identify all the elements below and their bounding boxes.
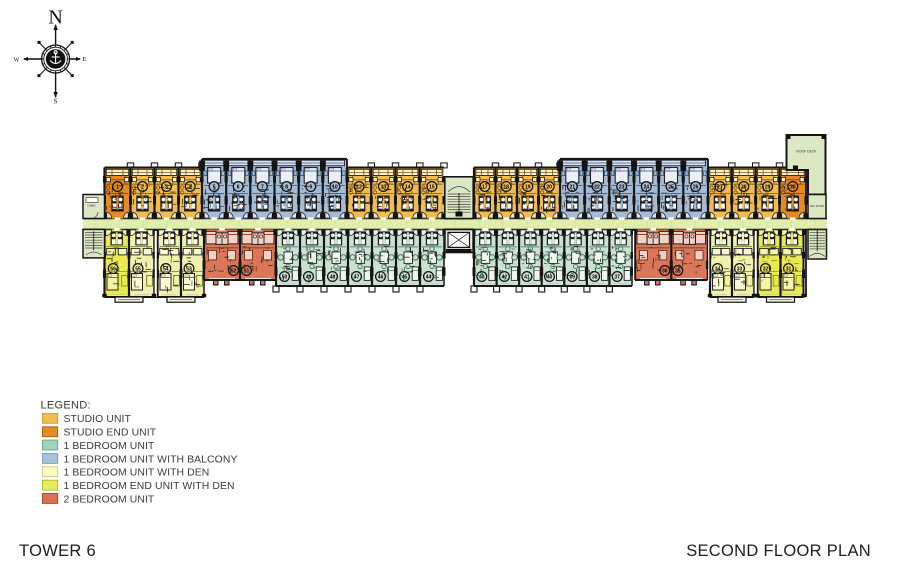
svg-text:2 BEDROOM UNIT: 2 BEDROOM UNIT <box>64 494 155 505</box>
svg-text:10: 10 <box>332 184 338 190</box>
svg-text:S: S <box>54 98 58 106</box>
svg-text:N: N <box>48 6 62 28</box>
svg-text:1 BEDROOM UNIT WITH BALCONY: 1 BEDROOM UNIT WITH BALCONY <box>64 454 238 465</box>
svg-text:35: 35 <box>675 268 681 274</box>
svg-text:50: 50 <box>282 274 288 280</box>
svg-text:41: 41 <box>524 274 530 280</box>
svg-text:E: E <box>83 56 87 63</box>
svg-text:19: 19 <box>525 184 531 190</box>
svg-text:LOBBY: LOBBY <box>87 204 96 208</box>
svg-text:37: 37 <box>614 274 620 280</box>
svg-text:STUDIO UNIT: STUDIO UNIT <box>64 414 132 425</box>
svg-text:6: 6 <box>237 184 240 190</box>
svg-text:40: 40 <box>547 274 553 280</box>
svg-text:43: 43 <box>479 274 485 280</box>
svg-text:SECOND FLOOR PLAN: SECOND FLOOR PLAN <box>686 542 871 560</box>
svg-text:38: 38 <box>592 274 598 280</box>
svg-text:1 BEDROOM END UNIT WITH DEN: 1 BEDROOM END UNIT WITH DEN <box>64 481 235 492</box>
svg-text:45: 45 <box>402 274 408 280</box>
svg-text:1 BEDROOM UNIT: 1 BEDROOM UNIT <box>64 441 155 452</box>
svg-text:TOWER 6: TOWER 6 <box>19 542 96 560</box>
svg-text:20: 20 <box>546 184 552 190</box>
svg-text:52: 52 <box>231 268 237 274</box>
svg-text:W: W <box>14 58 20 64</box>
svg-text:ROOF DECK: ROOF DECK <box>796 150 817 154</box>
svg-text:17: 17 <box>482 184 488 190</box>
svg-text:44: 44 <box>426 274 432 280</box>
svg-text:15: 15 <box>429 184 435 190</box>
svg-text:46: 46 <box>378 274 384 280</box>
svg-text:1: 1 <box>116 184 119 190</box>
svg-text:18: 18 <box>503 184 509 190</box>
svg-text:36: 36 <box>662 268 668 274</box>
svg-text:9: 9 <box>309 184 312 190</box>
svg-text:STUDIO END UNIT: STUDIO END UNIT <box>64 428 157 439</box>
svg-text:LEGEND:: LEGEND: <box>41 400 91 412</box>
svg-text:48: 48 <box>330 274 336 280</box>
svg-text:BAL ROOM: BAL ROOM <box>810 204 824 208</box>
svg-text:47: 47 <box>354 274 360 280</box>
svg-text:51: 51 <box>244 268 250 274</box>
svg-text:1 BEDROOM UNIT WITH DEN: 1 BEDROOM UNIT WITH DEN <box>64 468 210 479</box>
